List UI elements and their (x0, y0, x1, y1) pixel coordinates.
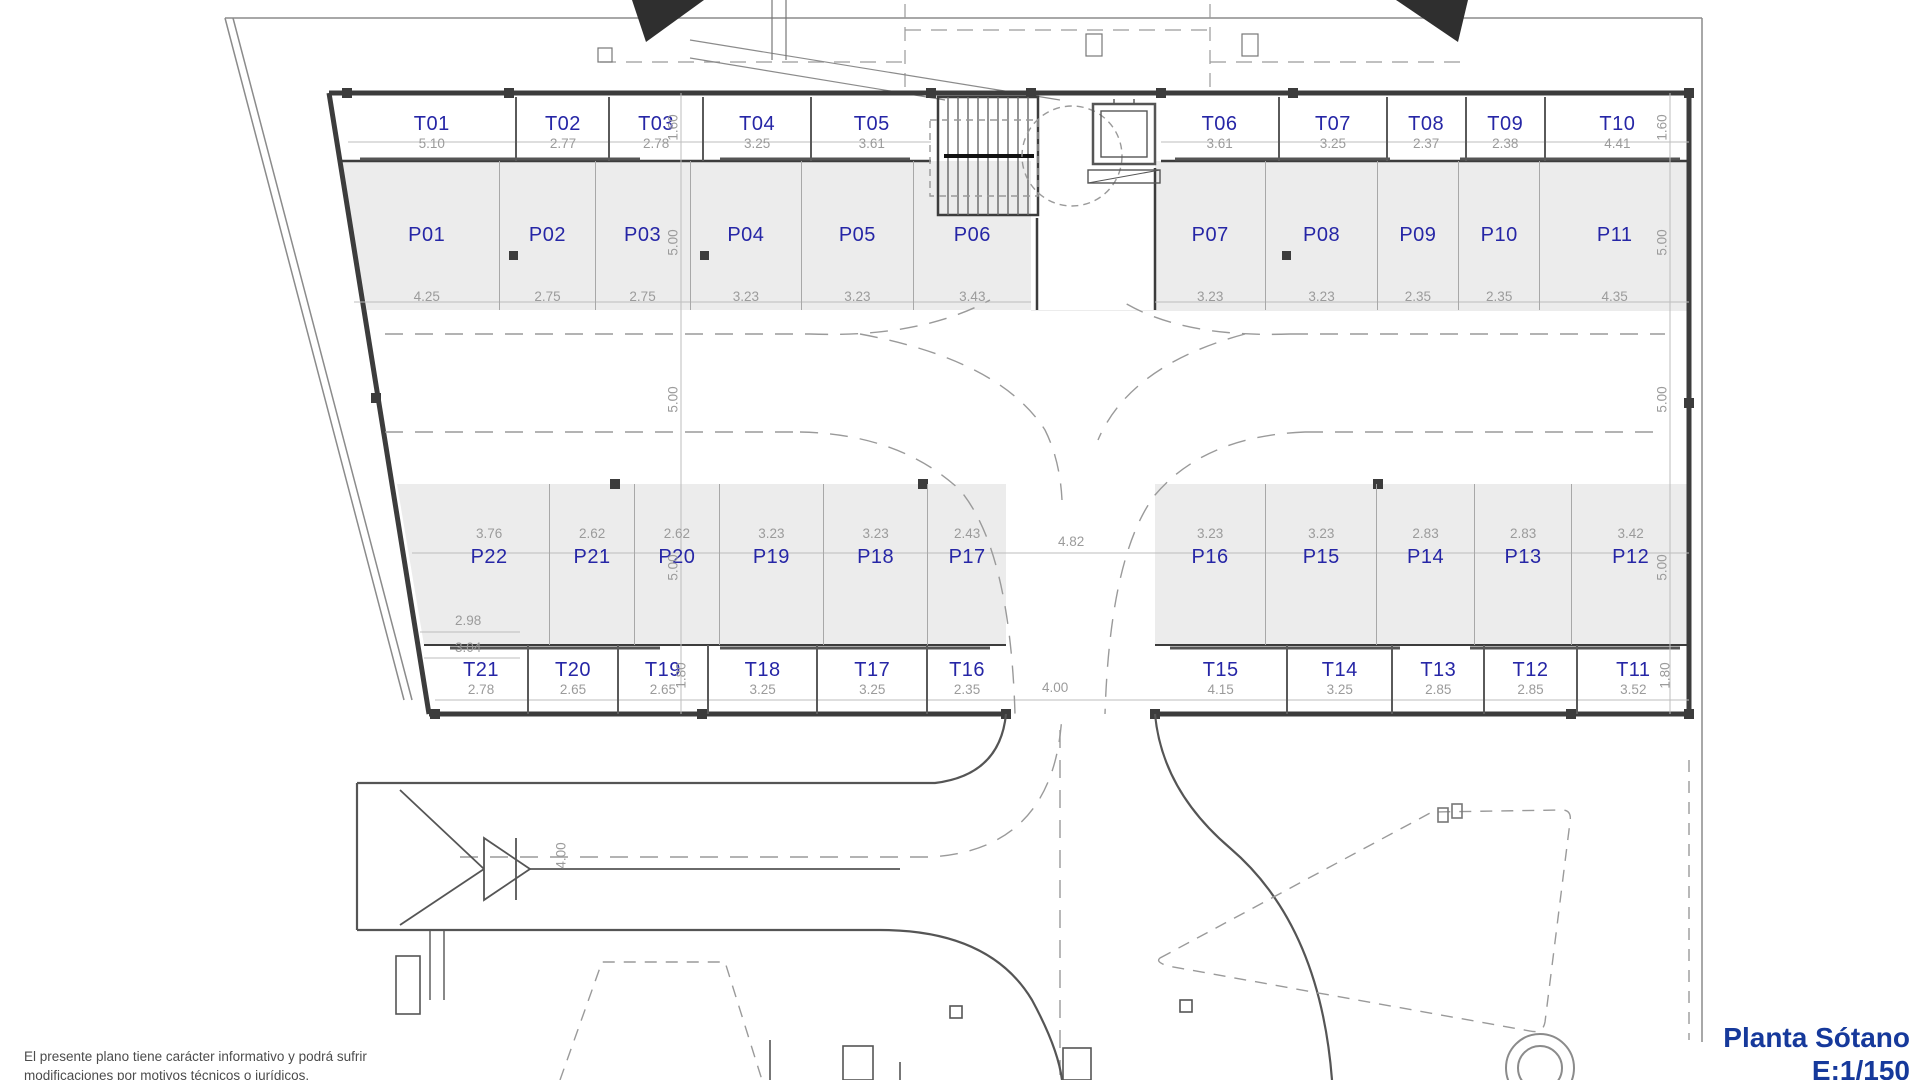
parking-label: P13 (1475, 546, 1572, 569)
parking-space: 3.23 P16 (1155, 484, 1265, 645)
depth-dim: 5.00 (666, 386, 681, 412)
parking-label: P22 (429, 546, 549, 569)
parking-label: P04 (727, 224, 764, 247)
plan-scale: E:1/150 (1723, 1054, 1910, 1080)
storage-width-dim: 2.37 (1413, 136, 1439, 151)
storage-unit: T12 2.85 (1483, 645, 1575, 714)
disclaimer-line2: modificaciones por motivos técnicos o ju… (24, 1066, 414, 1080)
parking-label: P07 (1192, 224, 1229, 247)
storage-width-dim: 3.61 (859, 136, 885, 151)
lane-width-dim: 4.00 (1042, 680, 1068, 695)
parking-label: P21 (550, 546, 634, 569)
storage-width-dim: 2.65 (650, 682, 676, 697)
door-swing-icon (632, 0, 1468, 42)
parking-width-dim: 3.23 (720, 526, 823, 541)
parking-space: 3.23 P15 (1265, 484, 1376, 645)
top-storage-row-right: T06 3.61 T07 3.25 T08 2.37 T09 2.38 T10 … (1161, 97, 1689, 161)
storage-unit: T13 2.85 (1391, 645, 1483, 714)
storage-width-dim: 3.25 (749, 682, 775, 697)
site-objects (396, 956, 1192, 1080)
parking-space: 2.83 P14 (1376, 484, 1474, 645)
storage-unit: T04 3.25 (702, 97, 811, 161)
access-road (357, 714, 1332, 1080)
parking-space: P08 3.23 (1265, 161, 1376, 310)
storage-unit: T14 3.25 (1286, 645, 1391, 714)
depth-dim: 1.80 (674, 662, 689, 688)
parking-label: P10 (1481, 224, 1518, 247)
storage-label: T16 (949, 659, 985, 682)
pool-ladder-icon (1438, 804, 1462, 822)
storage-label: T17 (854, 659, 890, 682)
parking-label: P12 (1572, 546, 1689, 569)
storage-width-dim: 3.25 (1320, 136, 1346, 151)
floor-plan-canvas: T01 5.10 T02 2.77 T03 2.78 T04 3.25 T05 … (0, 0, 1920, 1080)
parking-width-dim: 3.23 (824, 526, 927, 541)
storage-width-dim: 4.41 (1604, 136, 1630, 151)
parking-width-dim: 2.83 (1377, 526, 1474, 541)
depth-dim: 5.00 (1655, 554, 1670, 580)
storage-label: T20 (555, 659, 591, 682)
parking-label: P08 (1303, 224, 1340, 247)
storage-width-dim: 2.85 (1425, 682, 1451, 697)
depth-dim: 1.80 (1658, 662, 1673, 688)
parking-label: P03 (624, 224, 661, 247)
parking-space: P07 3.23 (1155, 161, 1265, 310)
storage-unit: T06 3.61 (1161, 97, 1278, 161)
depth-dim: 1.60 (666, 114, 681, 140)
parking-label: P17 (928, 546, 1006, 569)
storage-label: T21 (463, 659, 499, 682)
parking-width-dim: 3.23 (1155, 289, 1265, 304)
ramp-width-dim: 4.00 (554, 842, 569, 868)
storage-unit: T01 5.10 (348, 97, 515, 161)
aisle-width-dim: 4.82 (1058, 534, 1084, 549)
storage-label: T06 (1202, 113, 1238, 136)
storage-label: T05 (854, 113, 890, 136)
bottom-storage-row-left: T21 2.78 T20 2.65 T19 2.65 T18 3.25 T17 … (435, 645, 1006, 714)
parking-width-dim: 3.23 (1266, 526, 1376, 541)
parking-space: P06 3.43 (913, 161, 1031, 310)
storage-unit: T08 2.37 (1386, 97, 1465, 161)
storage-unit: T18 3.25 (707, 645, 817, 714)
title-block: Planta Sótano E:1/150 (1723, 1021, 1910, 1080)
storage-unit: T16 2.35 (926, 645, 1006, 714)
storage-label: T18 (745, 659, 781, 682)
storage-label: T12 (1513, 659, 1549, 682)
storage-label: T07 (1315, 113, 1351, 136)
bottom-parking-row-left: 3.76 P22 2.62 P21 2.62 P20 3.23 P19 3.23… (429, 484, 1006, 645)
elevator (1088, 99, 1160, 183)
storage-unit: T15 4.15 (1155, 645, 1286, 714)
parking-width-dim: 3.23 (691, 289, 802, 304)
storage-label: T01 (414, 113, 450, 136)
parking-space: 3.23 P19 (719, 484, 823, 645)
parking-label: P02 (529, 224, 566, 247)
parking-width-dim: 2.83 (1475, 526, 1572, 541)
parking-width-dim: 3.23 (1266, 289, 1376, 304)
top-parking-row-left: P01 4.25 P02 2.75 P03 2.75 P04 3.23 P05 … (354, 161, 1031, 310)
parking-label: P16 (1155, 546, 1265, 569)
parking-space: P01 4.25 (354, 161, 499, 310)
parking-space: P02 2.75 (499, 161, 594, 310)
storage-unit: T20 2.65 (527, 645, 617, 714)
parking-label: P11 (1597, 224, 1633, 247)
disclaimer-line1: El presente plano tiene carácter informa… (24, 1047, 414, 1067)
storage-width-dim: 3.61 (1206, 136, 1232, 151)
parking-space: 2.43 P17 (927, 484, 1006, 645)
parking-label: P15 (1266, 546, 1376, 569)
plan-title: Planta Sótano (1723, 1021, 1910, 1055)
storage-width-dim: 5.10 (419, 136, 445, 151)
parking-width-dim: 2.75 (596, 289, 690, 304)
parking-space: P05 3.23 (801, 161, 913, 310)
parking-width-dim: 4.35 (1540, 289, 1689, 304)
parking-space: 3.76 P22 (429, 484, 549, 645)
parking-label: P01 (408, 224, 445, 247)
depth-dim: 1.60 (1655, 114, 1670, 140)
storage-unit: T02 2.77 (515, 97, 608, 161)
top-storage-row-left: T01 5.10 T02 2.77 T03 2.78 T04 3.25 T05 … (348, 97, 931, 161)
storage-width-dim: 4.15 (1208, 682, 1234, 697)
parking-space: 3.23 P18 (823, 484, 927, 645)
parking-width-dim: 2.75 (500, 289, 594, 304)
parking-width-dim: 2.43 (928, 526, 1006, 541)
storage-label: T08 (1408, 113, 1444, 136)
p22-sub-dim: 3.04 (455, 640, 481, 655)
storage-label: T15 (1203, 659, 1239, 682)
bottom-storage-row-right: T15 4.15 T14 3.25 T13 2.85 T12 2.85 T11 … (1155, 645, 1689, 714)
storage-unit: T19 2.65 (617, 645, 707, 714)
storage-label: T04 (739, 113, 775, 136)
parking-space: 2.83 P13 (1474, 484, 1572, 645)
parking-space: P10 2.35 (1458, 161, 1539, 310)
parking-label: P18 (824, 546, 927, 569)
parking-label: P05 (839, 224, 876, 247)
depth-dim: 5.00 (1655, 229, 1670, 255)
storage-unit: T09 2.38 (1465, 97, 1544, 161)
top-parking-row-right: P07 3.23 P08 3.23 P09 2.35 P10 2.35 P11 … (1155, 161, 1689, 310)
storage-width-dim: 3.25 (744, 136, 770, 151)
storage-width-dim: 3.25 (859, 682, 885, 697)
storage-label: T14 (1322, 659, 1358, 682)
storage-width-dim: 2.35 (954, 682, 980, 697)
bottom-parking-row-right: 3.23 P16 3.23 P15 2.83 P14 2.83 P13 3.42… (1155, 484, 1689, 645)
parking-width-dim: 2.35 (1459, 289, 1539, 304)
storage-unit: T05 3.61 (810, 97, 931, 161)
storage-label: T02 (545, 113, 581, 136)
pool-terrace-outline (560, 760, 1689, 1080)
parking-label: P09 (1399, 224, 1436, 247)
storage-label: T09 (1487, 113, 1523, 136)
parking-space: P09 2.35 (1377, 161, 1458, 310)
parking-width-dim: 4.25 (354, 289, 499, 304)
parking-label: P14 (1377, 546, 1474, 569)
storage-width-dim: 2.85 (1517, 682, 1543, 697)
storage-label: T11 (1616, 659, 1650, 682)
parking-label: P06 (954, 224, 991, 247)
parking-width-dim: 3.23 (802, 289, 913, 304)
depth-dim: 5.00 (666, 554, 681, 580)
upper-floor-overhang (598, 0, 1460, 100)
storage-width-dim: 2.38 (1492, 136, 1518, 151)
parking-space: 3.42 P12 (1571, 484, 1689, 645)
parking-width-dim: 3.76 (429, 526, 549, 541)
storage-width-dim: 3.52 (1620, 682, 1646, 697)
disclaimer-text: El presente plano tiene carácter informa… (24, 1047, 414, 1080)
depth-dim: 5.00 (666, 229, 681, 255)
storage-width-dim: 3.25 (1327, 682, 1353, 697)
p22-sub-dim: 2.98 (455, 613, 481, 628)
storage-width-dim: 2.65 (560, 682, 586, 697)
parking-width-dim: 2.62 (635, 526, 719, 541)
storage-unit: T21 2.78 (435, 645, 527, 714)
storage-unit: T17 3.25 (816, 645, 926, 714)
depth-dim: 5.00 (1655, 386, 1670, 412)
storage-label: T13 (1420, 659, 1456, 682)
parking-space: 2.62 P21 (549, 484, 634, 645)
storage-unit: T07 3.25 (1278, 97, 1386, 161)
parking-width-dim: 2.62 (550, 526, 634, 541)
parking-width-dim: 3.42 (1572, 526, 1689, 541)
storage-width-dim: 2.78 (468, 682, 494, 697)
parking-space: P04 3.23 (690, 161, 802, 310)
storage-unit: T03 2.78 (608, 97, 701, 161)
parking-width-dim: 3.43 (914, 289, 1031, 304)
parking-width-dim: 2.35 (1378, 289, 1458, 304)
storage-label: T10 (1599, 113, 1635, 136)
parking-width-dim: 3.23 (1155, 526, 1265, 541)
storage-width-dim: 2.77 (550, 136, 576, 151)
parking-label: P19 (720, 546, 823, 569)
